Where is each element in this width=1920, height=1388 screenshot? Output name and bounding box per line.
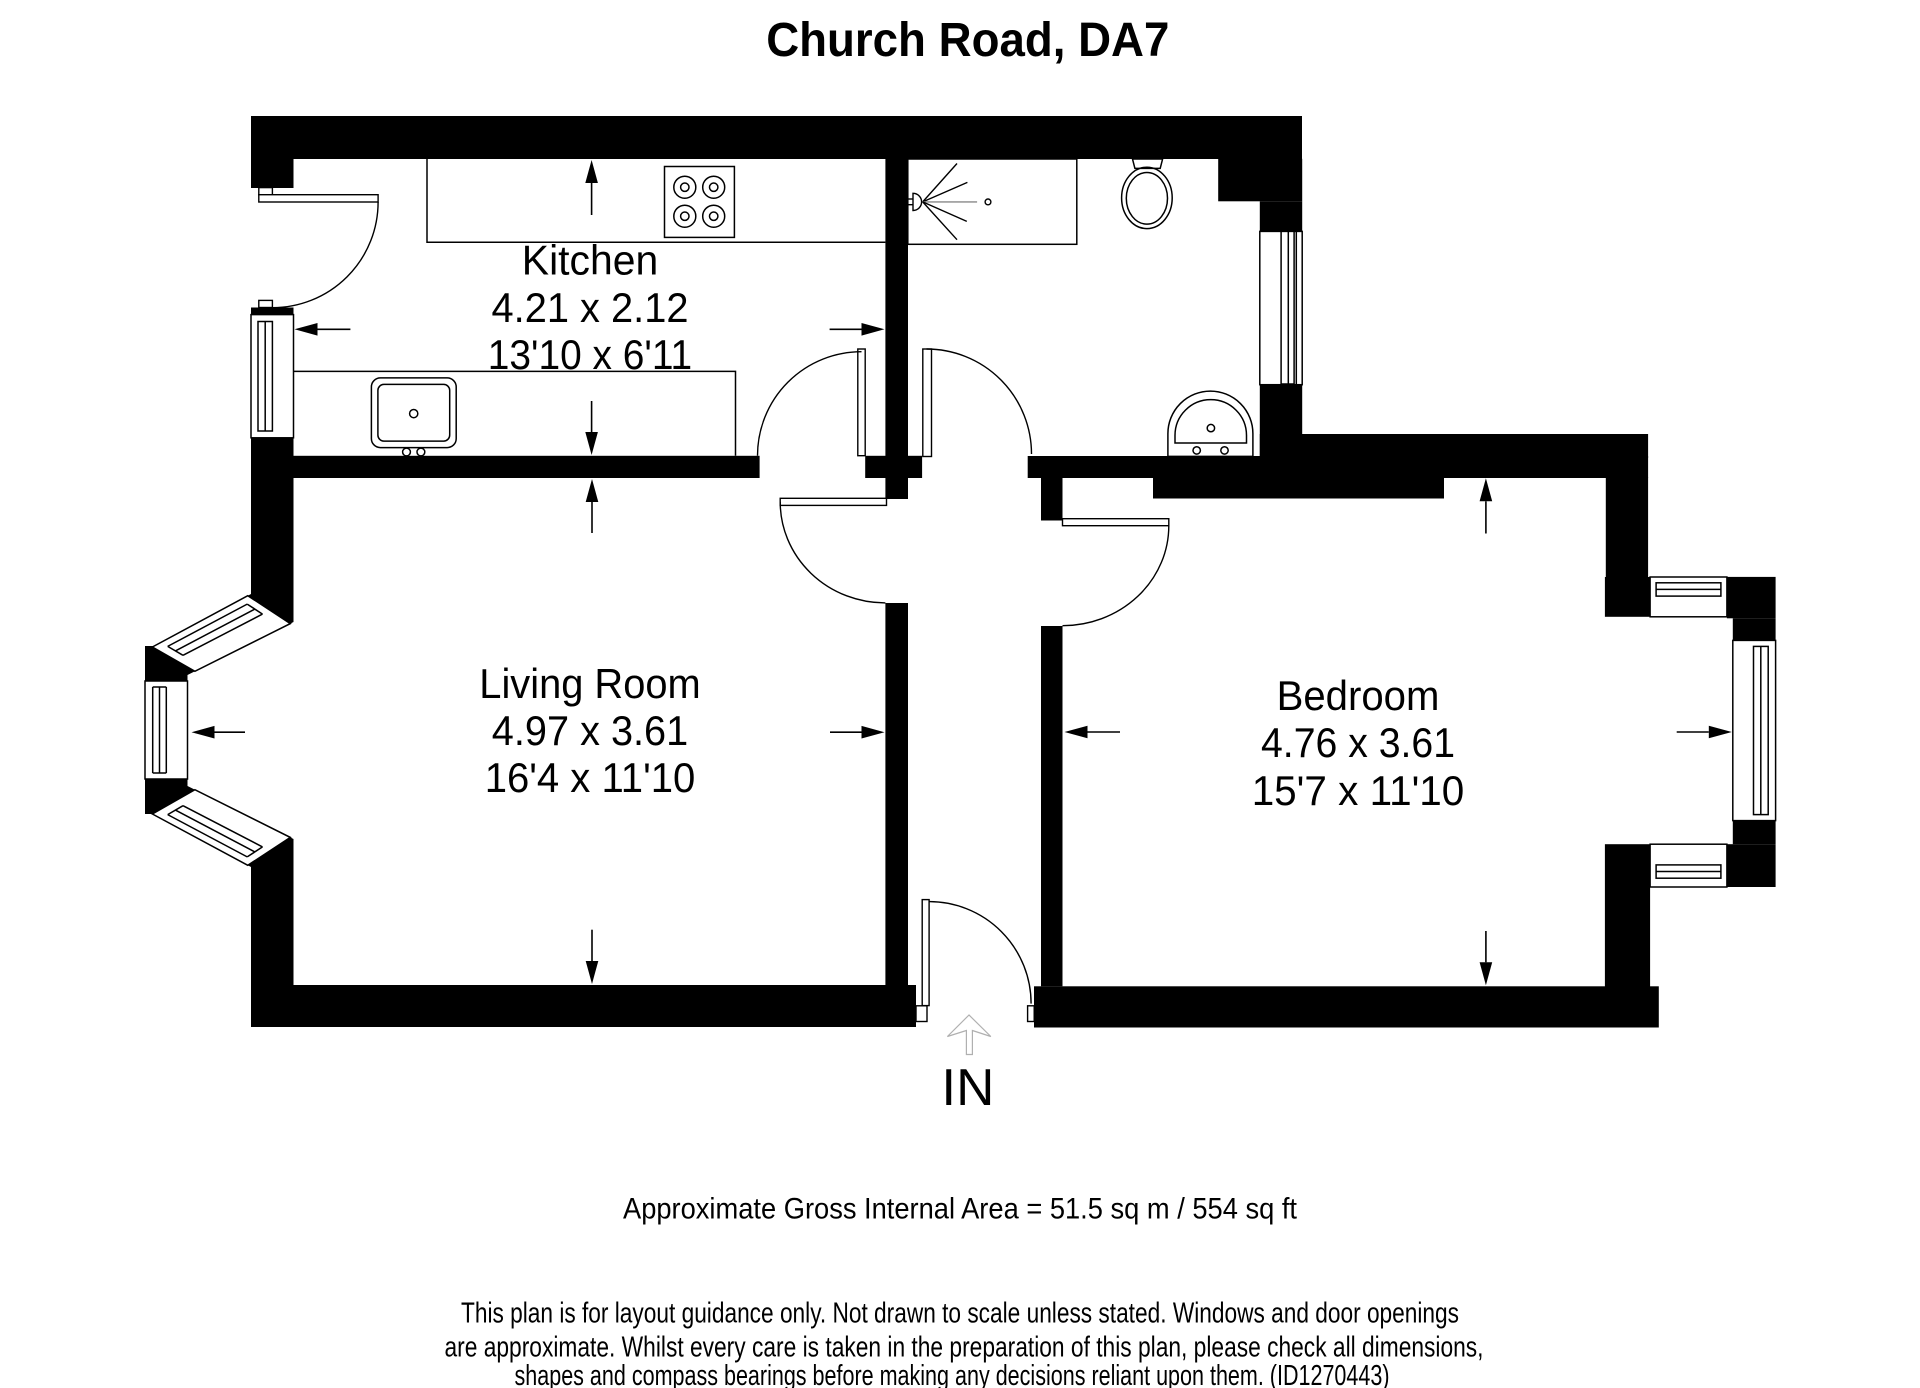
svg-text:This plan is for layout guidan: This plan is for layout guidance only. N… — [461, 1297, 1459, 1329]
svg-text:Church Road, DA7: Church Road, DA7 — [766, 14, 1169, 67]
svg-text:are approximate. Whilst every: are approximate. Whilst every care is ta… — [445, 1332, 1484, 1364]
svg-text:Living Room: Living Room — [479, 660, 700, 707]
svg-text:shapes and compass bearings be: shapes and compass bearings before makin… — [515, 1360, 1390, 1388]
svg-text:Kitchen: Kitchen — [522, 237, 658, 284]
svg-text:13'10 x 6'11: 13'10 x 6'11 — [488, 331, 692, 378]
svg-text:4.97 x 3.61: 4.97 x 3.61 — [492, 707, 688, 754]
svg-text:4.21 x 2.12: 4.21 x 2.12 — [492, 284, 689, 331]
svg-text:Bedroom: Bedroom — [1277, 672, 1440, 719]
svg-text:15'7 x 11'10: 15'7 x 11'10 — [1252, 767, 1465, 814]
svg-text:16'4 x 11'10: 16'4 x 11'10 — [485, 754, 696, 801]
svg-text:IN: IN — [941, 1059, 994, 1117]
svg-text:4.76 x 3.61: 4.76 x 3.61 — [1261, 719, 1455, 766]
svg-text:Approximate Gross Internal Are: Approximate Gross Internal Area = 51.5 s… — [623, 1192, 1298, 1225]
